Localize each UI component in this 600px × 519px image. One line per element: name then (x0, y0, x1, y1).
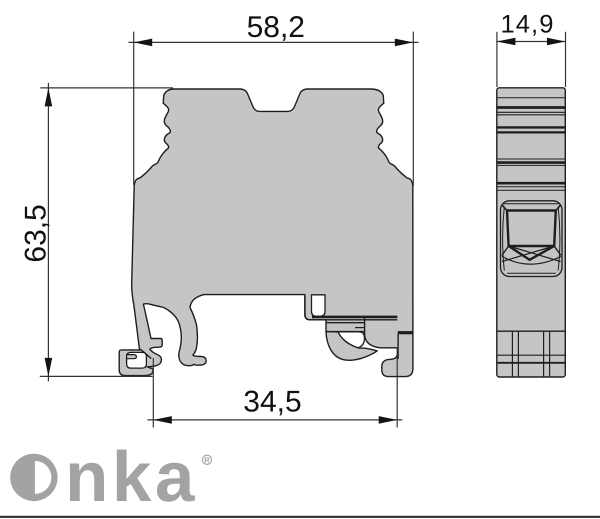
svg-text:58,2: 58,2 (247, 11, 305, 44)
svg-text:nka: nka (65, 438, 198, 517)
svg-text:63,5: 63,5 (19, 204, 52, 262)
svg-text:34,5: 34,5 (243, 385, 301, 418)
svg-text:R: R (204, 456, 210, 465)
svg-text:14,9: 14,9 (500, 10, 554, 38)
